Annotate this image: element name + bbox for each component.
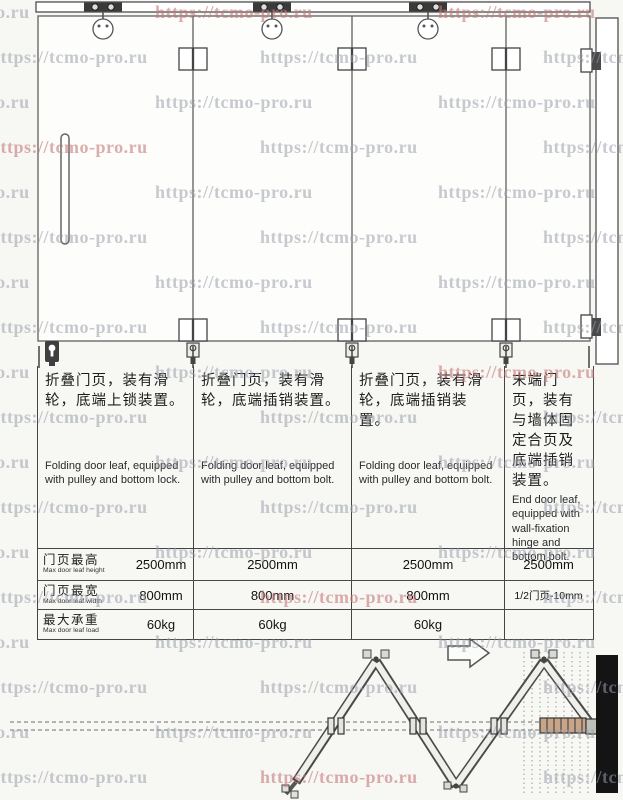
spec-value: 2500mm — [352, 549, 505, 580]
table-cell: 门页最宽 Max door leaf width 800mm — [38, 581, 194, 609]
description-en: Folding door leaf, equipped with pulley … — [45, 457, 186, 488]
spec-value: 60kg — [129, 617, 193, 632]
roller-wheel-icon — [93, 19, 113, 39]
spec-value: 1/2门页-10mm — [505, 581, 592, 609]
door-handle-icon — [61, 134, 69, 244]
spec-value: 60kg — [194, 610, 352, 639]
plan-end-handle-icon — [282, 782, 298, 798]
table-row-max-load: 最大承重 Max door leaf load 60kg 60kg 60kg — [38, 609, 593, 639]
description-cn: 折叠门页，装有滑轮，底端插销装置。 — [359, 371, 497, 457]
wall-hinge-icon — [592, 318, 601, 336]
row-label-cn: 门页最高 — [43, 554, 129, 567]
bottom-lock-icon — [45, 341, 59, 366]
folded-stack-icon — [540, 718, 586, 733]
folding-door-spec-sheet: 折叠门页，装有滑轮，底端上锁装置。 Folding door leaf, equ… — [0, 0, 623, 800]
wall-hinge-icon — [592, 52, 601, 70]
bottom-bolts — [187, 343, 512, 364]
spec-value: 2500mm — [129, 557, 193, 572]
row-label-cn: 最大承重 — [43, 614, 129, 627]
hinge-icon — [507, 48, 521, 70]
plan-drawing — [0, 638, 623, 800]
table-row-max-height: 门页最高 Max door leaf height 2500mm 2500mm … — [38, 549, 593, 580]
row-label-en: Max door leaf height — [43, 567, 129, 574]
roller-wheel-icon — [262, 19, 282, 39]
description-row: 折叠门页，装有滑轮，底端上锁装置。 Folding door leaf, equ… — [37, 366, 594, 548]
center-dashed-line — [10, 722, 596, 730]
description-cell-leaf1: 折叠门页，装有滑轮，底端上锁装置。 Folding door leaf, equ… — [38, 366, 194, 548]
spec-value: 2500mm — [505, 549, 592, 580]
spec-value: 800mm — [129, 588, 193, 603]
spec-value: 2500mm — [194, 549, 352, 580]
table-row-max-width: 门页最宽 Max door leaf width 800mm 800mm 800… — [38, 580, 593, 609]
description-cell-end-leaf: 末端门页，装有与墙体固定合页及底端插销装置。 End door leaf, eq… — [505, 366, 592, 548]
row-label: 最大承重 Max door leaf load — [43, 614, 129, 635]
direction-arrow-icon — [448, 639, 489, 667]
table-cell: 最大承重 Max door leaf load 60kg — [38, 610, 194, 639]
hinge-icon — [492, 48, 506, 70]
elevation-drawing — [0, 0, 623, 368]
description-cn: 折叠门页，装有滑轮，底端上锁装置。 — [45, 371, 186, 457]
description-cn: 折叠门页，装有滑轮，底端插销装置。 — [201, 371, 344, 457]
plan-hinge-icon — [531, 650, 557, 662]
description-en: Folding door leaf, equipped with pulley … — [359, 457, 497, 488]
description-cell-leaf2: 折叠门页，装有滑轮，底端插销装置。 Folding door leaf, equ… — [194, 366, 352, 548]
wall-connector-icon — [586, 719, 597, 734]
row-label: 门页最宽 Max door leaf width — [43, 585, 129, 606]
hinge-icon — [194, 319, 208, 341]
watermark-text: https://tcmo-pro.ru — [0, 452, 30, 473]
hinge-icon — [353, 48, 367, 70]
spec-value: 800mm — [194, 581, 352, 609]
column-ticks — [39, 346, 589, 368]
plan-wall — [596, 655, 618, 793]
hinge-icon — [179, 48, 193, 70]
spec-value: 60kg — [352, 610, 505, 639]
wall-hinge-icon — [581, 315, 592, 338]
wall-hinge-icon — [581, 49, 592, 72]
table-cell: 门页最高 Max door leaf height 2500mm — [38, 549, 194, 580]
hinge-icon — [179, 319, 193, 341]
hinge-icon — [353, 319, 367, 341]
apex-hinges — [363, 650, 557, 792]
spec-table: 门页最高 Max door leaf height 2500mm 2500mm … — [37, 548, 594, 640]
roller-wheel-icon — [418, 19, 438, 39]
watermark-text: https://tcmo-pro.ru — [0, 542, 30, 563]
plan-hinge-icon — [363, 650, 389, 662]
hinge-icon — [338, 319, 352, 341]
row-label-en: Max door leaf load — [43, 627, 129, 634]
spec-value — [505, 610, 592, 639]
description-cell-leaf3: 折叠门页，装有滑轮，底端插销装置。 Folding door leaf, equ… — [352, 366, 505, 548]
hinge-icon — [492, 319, 506, 341]
spec-value: 800mm — [352, 581, 505, 609]
hinge-icon — [194, 48, 208, 70]
hinge-icon — [507, 319, 521, 341]
row-label: 门页最高 Max door leaf height — [43, 554, 129, 575]
hinge-icon — [338, 48, 352, 70]
row-label-en: Max door leaf width — [43, 598, 129, 605]
description-en: Folding door leaf, equipped with pulley … — [201, 457, 344, 488]
row-label-cn: 门页最宽 — [43, 585, 129, 598]
description-cn: 末端门页，装有与墙体固定合页及底端插销装置。 — [512, 371, 585, 491]
